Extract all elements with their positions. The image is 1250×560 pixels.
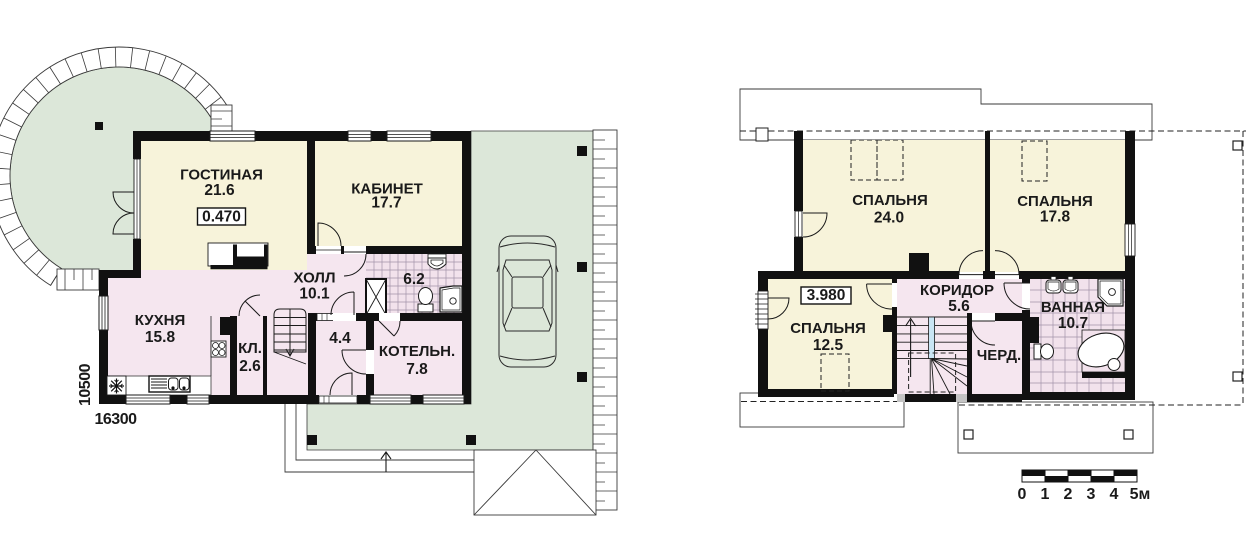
svg-text:4: 4 xyxy=(1110,486,1119,503)
svg-text:7.8: 7.8 xyxy=(406,361,428,378)
svg-text:КОТЕЛЬН.: КОТЕЛЬН. xyxy=(379,343,455,360)
svg-text:17.7: 17.7 xyxy=(371,195,401,212)
svg-text:2: 2 xyxy=(1064,486,1073,503)
svg-text:0: 0 xyxy=(1018,486,1027,503)
svg-text:КОРИДОР: КОРИДОР xyxy=(920,282,994,299)
svg-text:СПАЛЬНЯ: СПАЛЬНЯ xyxy=(1017,193,1093,210)
svg-text:КУХНЯ: КУХНЯ xyxy=(135,312,185,329)
svg-text:3: 3 xyxy=(1087,486,1096,503)
svg-text:15.8: 15.8 xyxy=(145,329,176,346)
svg-text:0.470: 0.470 xyxy=(202,209,241,226)
svg-text:10500: 10500 xyxy=(77,363,94,406)
svg-text:21.6: 21.6 xyxy=(204,182,235,199)
svg-text:4.4: 4.4 xyxy=(329,330,351,347)
svg-text:3.980: 3.980 xyxy=(807,287,846,304)
svg-text:СПАЛЬНЯ: СПАЛЬНЯ xyxy=(790,320,866,337)
svg-text:12.5: 12.5 xyxy=(813,337,844,354)
svg-text:1: 1 xyxy=(1041,486,1050,503)
svg-text:ВАННАЯ: ВАННАЯ xyxy=(1041,299,1105,316)
svg-text:10.1: 10.1 xyxy=(299,286,330,303)
svg-text:16300: 16300 xyxy=(95,411,138,428)
svg-text:17.8: 17.8 xyxy=(1040,209,1071,226)
svg-text:5м: 5м xyxy=(1130,486,1151,503)
svg-text:ХОЛЛ: ХОЛЛ xyxy=(294,270,336,287)
svg-text:ЧЕРД.: ЧЕРД. xyxy=(977,347,1021,364)
svg-text:2.6: 2.6 xyxy=(239,358,261,375)
svg-text:КЛ.: КЛ. xyxy=(238,340,262,357)
svg-text:10.7: 10.7 xyxy=(1058,315,1088,332)
svg-text:6.2: 6.2 xyxy=(403,271,425,288)
svg-text:ГОСТИНАЯ: ГОСТИНАЯ xyxy=(180,167,263,184)
svg-text:24.0: 24.0 xyxy=(874,210,904,227)
svg-text:5.6: 5.6 xyxy=(948,298,970,315)
svg-text:СПАЛЬНЯ: СПАЛЬНЯ xyxy=(852,192,928,209)
